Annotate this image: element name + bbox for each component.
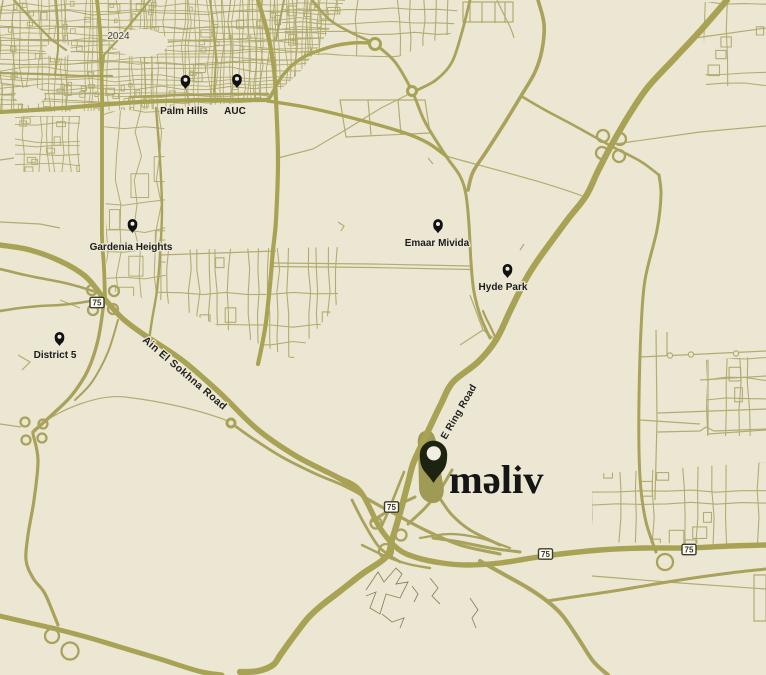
svg-text:75: 75 (93, 299, 102, 308)
svg-text:Hyde Park: Hyde Park (479, 282, 528, 293)
svg-text:Emaar Mivida: Emaar Mivida (405, 238, 470, 249)
svg-text:District 5: District 5 (34, 350, 77, 361)
svg-text:Palm Hills: Palm Hills (160, 106, 208, 117)
svg-text:məlıv: məlıv (449, 457, 544, 502)
svg-text:Gardenia Heights: Gardenia Heights (90, 242, 173, 253)
svg-text:75: 75 (387, 503, 396, 512)
svg-text:AUC: AUC (224, 106, 246, 117)
svg-text:75: 75 (685, 546, 694, 555)
svg-text:75: 75 (541, 550, 550, 559)
svg-text:2024: 2024 (107, 31, 130, 42)
